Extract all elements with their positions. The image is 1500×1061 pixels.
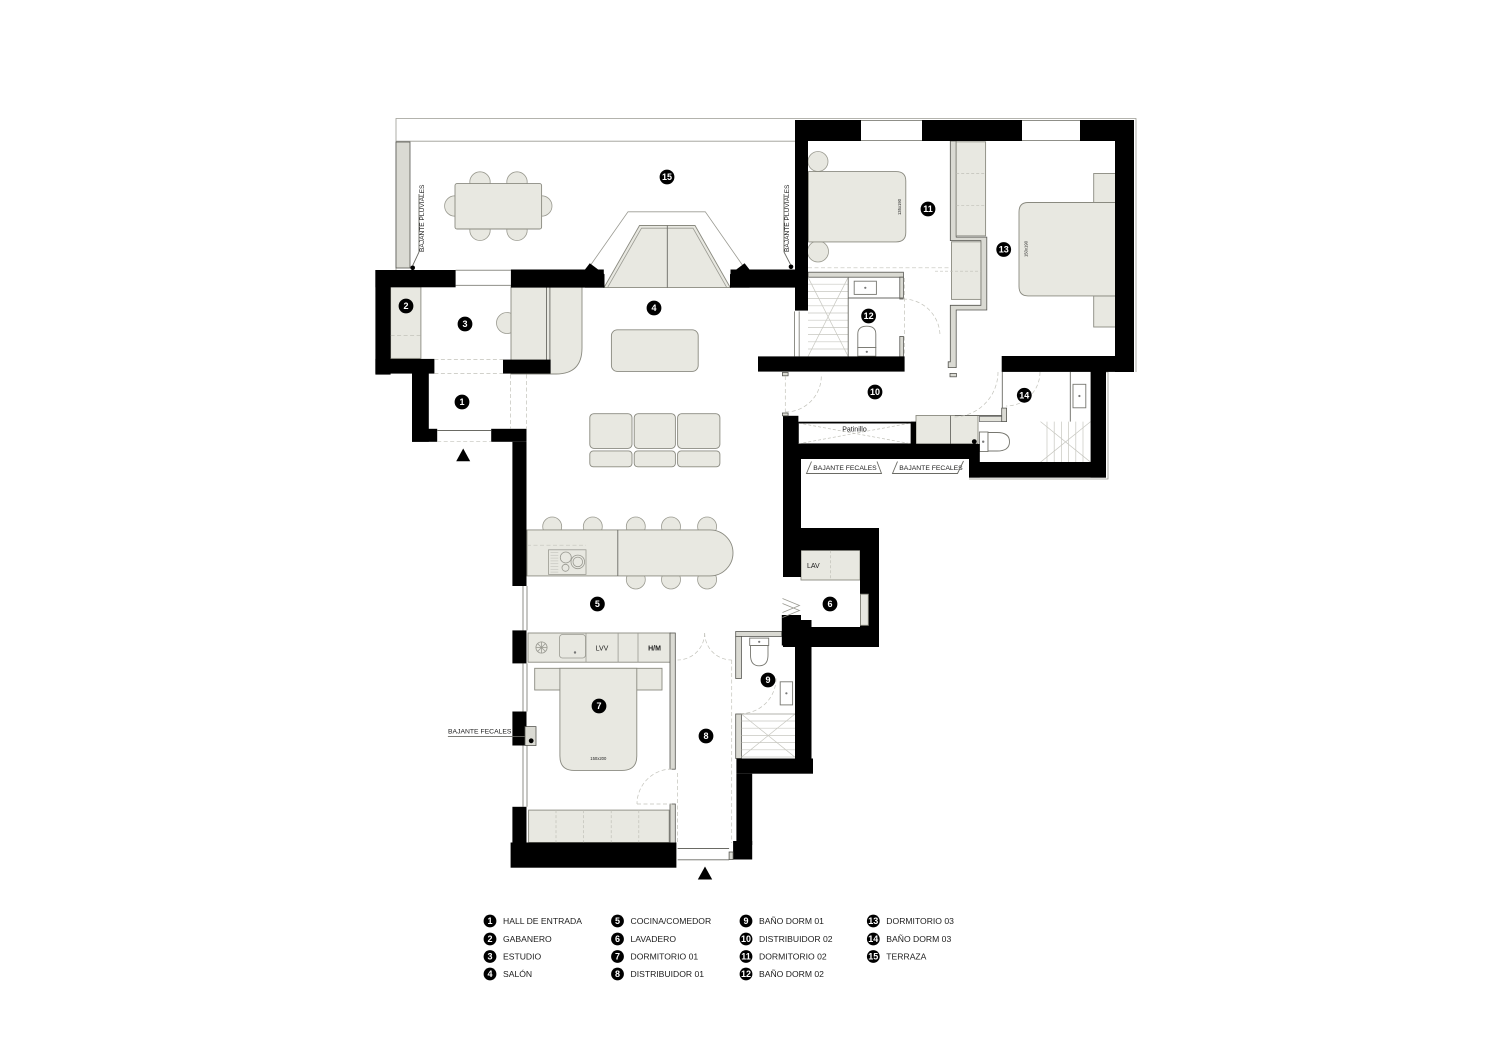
svg-text:BAJANTE FECALES: BAJANTE FECALES <box>448 729 512 736</box>
svg-text:4: 4 <box>487 969 492 979</box>
svg-text:TERRAZA: TERRAZA <box>886 952 926 962</box>
svg-text:150x190: 150x190 <box>1023 240 1028 257</box>
svg-text:2: 2 <box>487 934 492 944</box>
svg-text:8: 8 <box>615 969 620 979</box>
svg-text:BAÑO DORM 03: BAÑO DORM 03 <box>886 934 951 944</box>
svg-text:COCINA/COMEDOR: COCINA/COMEDOR <box>631 916 712 926</box>
svg-text:10: 10 <box>870 387 880 397</box>
svg-text:6: 6 <box>615 934 620 944</box>
svg-text:GABANERO: GABANERO <box>503 934 552 944</box>
svg-text:15: 15 <box>662 172 672 182</box>
svg-text:135x190: 135x190 <box>897 198 902 215</box>
svg-text:2: 2 <box>403 301 408 311</box>
svg-text:DORMITORIO 01: DORMITORIO 01 <box>631 952 699 962</box>
svg-text:14: 14 <box>1019 391 1029 401</box>
svg-text:9: 9 <box>765 675 770 685</box>
svg-text:14: 14 <box>868 934 878 944</box>
svg-text:12: 12 <box>741 969 751 979</box>
svg-text:5: 5 <box>595 599 600 609</box>
svg-text:4: 4 <box>651 303 656 313</box>
svg-text:BAJANTE PLUVIALES: BAJANTE PLUVIALES <box>419 184 426 252</box>
svg-text:150x200: 150x200 <box>590 756 607 761</box>
svg-text:11: 11 <box>923 204 933 214</box>
svg-text:BAJANTE FECALES: BAJANTE FECALES <box>813 465 877 472</box>
svg-text:13: 13 <box>999 245 1009 255</box>
svg-text:9: 9 <box>743 916 748 926</box>
svg-text:12: 12 <box>864 311 874 321</box>
svg-text:10: 10 <box>741 934 751 944</box>
svg-text:LAV: LAV <box>807 563 820 570</box>
svg-text:BAJANTE PLUVIALES: BAJANTE PLUVIALES <box>784 184 791 252</box>
svg-text:3: 3 <box>487 952 492 962</box>
svg-text:1: 1 <box>459 397 464 407</box>
svg-text:8: 8 <box>703 731 708 741</box>
svg-text:DORMITORIO 03: DORMITORIO 03 <box>886 916 954 926</box>
svg-text:LAVADERO: LAVADERO <box>631 934 677 944</box>
svg-text:Patinillo: Patinillo <box>842 427 867 434</box>
svg-text:11: 11 <box>741 952 751 962</box>
svg-text:6: 6 <box>827 599 832 609</box>
svg-text:LVV: LVV <box>596 646 609 653</box>
svg-text:BAÑO DORM 01: BAÑO DORM 01 <box>759 916 824 926</box>
svg-text:15: 15 <box>868 952 878 962</box>
svg-text:7: 7 <box>615 952 620 962</box>
svg-text:BAÑO DORM 02: BAÑO DORM 02 <box>759 969 824 979</box>
svg-text:H/M: H/M <box>648 646 661 653</box>
svg-text:ESTUDIO: ESTUDIO <box>503 952 542 962</box>
svg-text:7: 7 <box>596 701 601 711</box>
svg-text:1: 1 <box>487 916 492 926</box>
svg-text:BAJANTE FECALES: BAJANTE FECALES <box>899 465 963 472</box>
svg-text:3: 3 <box>462 319 467 329</box>
svg-text:DORMITORIO 02: DORMITORIO 02 <box>759 952 827 962</box>
svg-text:5: 5 <box>615 916 620 926</box>
svg-text:DISTRIBUIDOR 01: DISTRIBUIDOR 01 <box>631 969 705 979</box>
svg-text:HALL DE ENTRADA: HALL DE ENTRADA <box>503 916 582 926</box>
svg-text:DISTRIBUIDOR 02: DISTRIBUIDOR 02 <box>759 934 833 944</box>
svg-text:SALÓN: SALÓN <box>503 969 532 979</box>
svg-text:13: 13 <box>868 916 878 926</box>
